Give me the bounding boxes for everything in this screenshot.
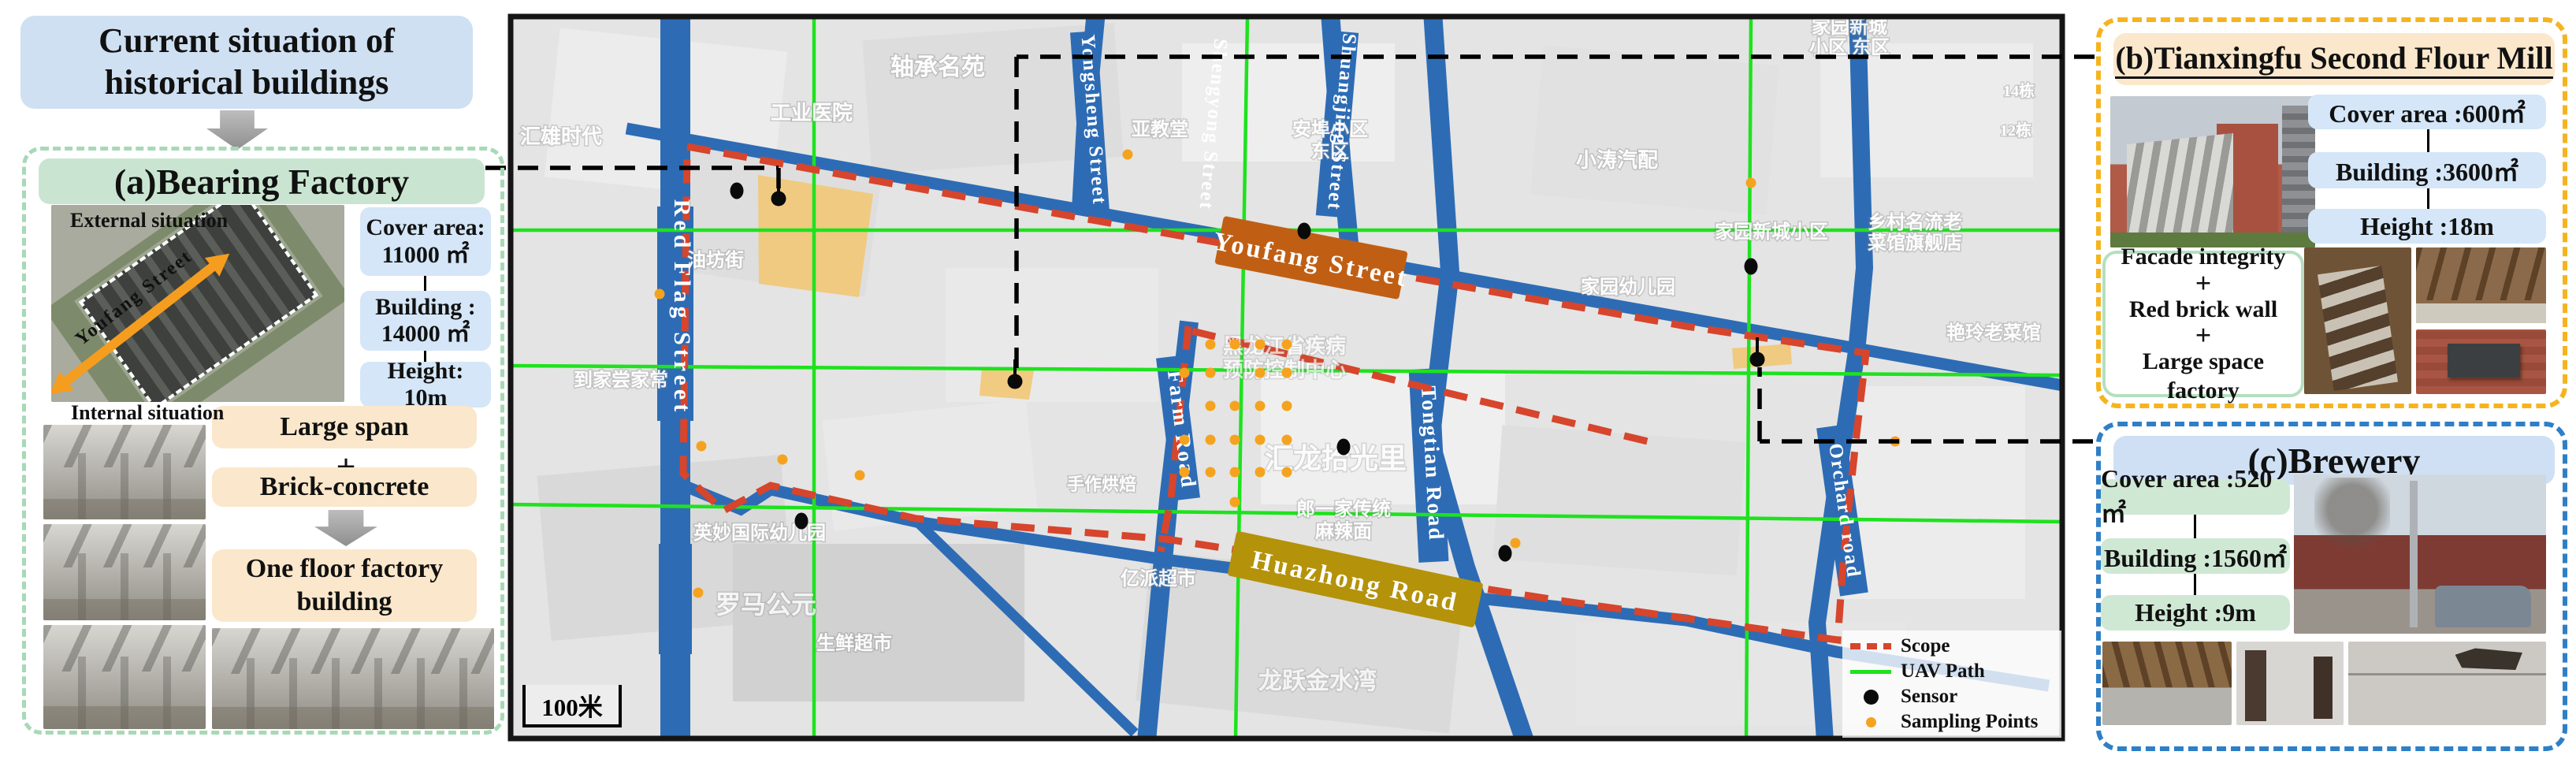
poi-label: 汇雄时代 — [520, 125, 602, 148]
sampling-point — [1206, 467, 1216, 478]
figure-title: Current situation of historical building… — [20, 16, 473, 109]
sampling-point — [1511, 538, 1521, 549]
sampling-point — [1230, 340, 1240, 350]
poi-label: 14栋 — [2003, 81, 2035, 100]
panel-a-header: (a)Bearing Factory — [39, 158, 485, 204]
hallway-photo — [2236, 642, 2344, 725]
panel-b-header: (b)Tianxingfu Second Flour Mill — [2113, 33, 2555, 85]
panel-flour-mill: (b)Tianxingfu Second Flour Mill Cover ar… — [2096, 17, 2567, 408]
poi-label: 乡村名流老 — [1868, 211, 1962, 233]
sensor — [1337, 439, 1351, 456]
poi-label: 家园新城小区 — [1715, 221, 1828, 243]
roof-beams-photo — [2416, 247, 2546, 323]
poi-label: 亿派超市 — [1121, 567, 1196, 590]
stat-cover-area: Cover area :520㎡ — [2101, 479, 2290, 515]
sensor — [730, 183, 744, 199]
sampling-point — [1255, 368, 1266, 378]
features-box: Facade integrity + Red brick wall + Larg… — [2102, 251, 2304, 397]
sensor-pin — [771, 192, 786, 206]
brewery-photo — [2294, 474, 2546, 634]
poi-label: 工业医院 — [771, 101, 853, 125]
sampling-point — [1180, 467, 1190, 478]
poi-label: 生鲜超市 — [816, 632, 892, 654]
sampling-point — [1746, 178, 1756, 188]
staircase-photo — [2304, 247, 2411, 394]
room-photo — [2348, 642, 2546, 725]
figure-canvas: 汇雄时代工业医院轴承名苑亚教堂安埠小区东区小涛汽配家园幼儿园油坊街到家尝家常黑龙… — [0, 0, 2576, 759]
sampling-dot-icon — [1849, 717, 1893, 727]
poi-label: 艳玲老菜馆 — [1946, 322, 2041, 344]
sampling-point — [1282, 401, 1292, 411]
poi-label: 小涛汽配 — [1576, 149, 1658, 172]
sampling-point — [1206, 340, 1216, 350]
sampling-point — [655, 289, 665, 300]
plaque-photo — [2416, 329, 2546, 394]
sampling-point — [693, 588, 704, 598]
sampling-point — [1206, 368, 1216, 378]
poi-label: 到家尝家常 — [574, 369, 668, 391]
legend-item-sampling-points: Sampling Points — [1849, 710, 2055, 734]
arrow-down-icon — [314, 510, 377, 546]
legend-item-sensor: Sensor — [1849, 685, 2055, 709]
sampling-point — [1282, 340, 1292, 350]
attic-photo — [2102, 642, 2232, 725]
stat-building: Building :3600㎡ — [2308, 152, 2546, 188]
sensor — [1298, 223, 1311, 240]
sampling-point — [1255, 435, 1266, 445]
stat-connector — [2194, 574, 2196, 595]
stat-connector — [2427, 188, 2429, 209]
sampling-point — [855, 471, 865, 481]
sampling-point — [1123, 150, 1133, 160]
poi-label: 轴承名苑 — [890, 54, 985, 80]
stat-cover-area: Cover area :600㎡ — [2308, 95, 2546, 129]
sampling-point — [1230, 435, 1240, 445]
sensor-pin — [1008, 374, 1023, 389]
sensor — [1499, 545, 1512, 562]
sampling-point — [697, 441, 707, 452]
sampling-point — [1206, 435, 1216, 445]
sensor — [795, 513, 808, 530]
interior-photo-wide — [212, 628, 494, 729]
stat-height: Height :9m — [2101, 595, 2290, 631]
internal-situation-label: Internal situation — [71, 401, 224, 425]
sampling-point — [1255, 401, 1266, 411]
interior-photo-1 — [43, 425, 206, 519]
stat-connector — [2194, 515, 2196, 538]
sampling-point — [1180, 435, 1190, 445]
result-box: One floor factory building — [212, 549, 477, 622]
stat-connector — [2427, 129, 2429, 152]
stat-building: Building :14000 ㎡ — [360, 291, 491, 351]
poi-label: 郎一家传统 — [1296, 498, 1391, 520]
uav-path-line-icon — [1849, 670, 1893, 674]
poi-label: 12栋 — [2000, 121, 2031, 140]
stat-height: Height:10m — [360, 362, 491, 407]
stat-connector — [424, 276, 426, 291]
sampling-point — [1255, 467, 1266, 478]
poi-label: 亚教堂 — [1132, 118, 1188, 140]
map-legend: Scope UAV Path Sensor Sampling Points — [1842, 631, 2061, 738]
interior-photo-3 — [43, 625, 206, 729]
stat-building: Building :1560㎡ — [2101, 538, 2290, 574]
street-label-red-flag: Red Flag Street — [669, 199, 695, 415]
flour-mill-photo — [2110, 96, 2315, 247]
footprint-flour-mill — [979, 367, 1034, 400]
poi-label: 手作烘焙 — [1067, 474, 1136, 494]
map-scale-bar: 100米 — [522, 685, 622, 727]
poi-label: 家园幼儿园 — [1581, 276, 1675, 298]
scope-line-icon — [1849, 643, 1893, 649]
legend-item-scope: Scope — [1849, 634, 2055, 658]
interior-photo-2 — [43, 524, 206, 620]
sensor-dot-icon — [1849, 690, 1893, 705]
sampling-point — [1230, 467, 1240, 478]
sampling-point — [778, 455, 788, 465]
external-situation-label: External situation — [70, 209, 228, 233]
sampling-point — [1230, 497, 1240, 508]
sampling-point — [1282, 467, 1292, 478]
stat-height: Height :18m — [2308, 209, 2546, 244]
feature-large-span: Large span — [212, 406, 477, 448]
feature-brick-concrete: Brick-concrete — [212, 467, 477, 507]
panel-brewery: (c)Brewery Cover area :520㎡ Building :15… — [2096, 422, 2567, 751]
sampling-point — [1282, 435, 1292, 445]
poi-label: 麻辣面 — [1314, 520, 1372, 542]
poi-label: 龙跃金水湾 — [1258, 668, 1377, 694]
sampling-point — [1206, 401, 1216, 411]
sampling-point — [1230, 401, 1240, 411]
poi-label: 菜馆旗舰店 — [1867, 232, 1962, 254]
aerial-photo: Youfang Street — [51, 205, 344, 402]
sampling-point — [1180, 368, 1190, 378]
sensor-pin — [1750, 352, 1765, 367]
panel-bearing-factory: (a)Bearing Factory External situation Yo… — [22, 147, 504, 735]
legend-item-uav-path: UAV Path — [1849, 660, 2055, 683]
stat-cover-area: Cover area:11000 ㎡ — [360, 207, 491, 276]
sampling-point — [1282, 368, 1292, 378]
poi-label: 罗马公元 — [716, 590, 816, 619]
sampling-point — [1255, 340, 1266, 350]
sensor — [1745, 259, 1758, 275]
